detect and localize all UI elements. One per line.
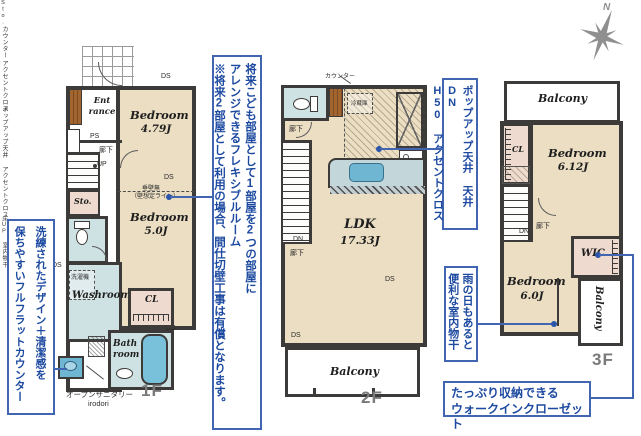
floorplan-sheet: N Ent rance Sto. PS 廊下 UP Sto. カウンター DS … <box>0 0 641 436</box>
f3-floor-label: 3F <box>592 350 614 370</box>
f2-fridge-label: 冷蔵庫 <box>351 99 368 107</box>
f3-landing <box>502 166 530 184</box>
note-flex-line3: ※将来2部屋として利用の場合、間仕切壁工事は有償となります。 <box>210 63 226 422</box>
connector-wic-h2 <box>591 397 634 399</box>
f1-washer-label: 洗濯機 <box>71 272 89 281</box>
connector-wic-v <box>632 254 634 399</box>
f1-bath-bowl <box>116 368 133 379</box>
f3-hall-label: 廊下 <box>536 221 550 231</box>
f1-shoe-cabinet <box>69 89 82 125</box>
compass-rose-icon <box>572 4 632 64</box>
f3-bedroom1-size: 6.12J <box>548 161 598 173</box>
f2-ds-left-label: DS <box>291 332 301 339</box>
connector-flex <box>170 196 212 198</box>
f1-bath-label-1: Bath <box>113 339 137 349</box>
f2-hall-btm-label: 廊下 <box>290 248 304 258</box>
f1-toilet-bowl <box>76 229 88 245</box>
f1-hall-label: 廊下 <box>99 145 113 155</box>
connector-popup <box>380 148 442 150</box>
note-popup-line1: ポップアップ天井 天井DN <box>444 85 474 223</box>
f1-mirror-fixture <box>88 336 105 357</box>
f1-counter-label: カウンター <box>0 26 9 60</box>
f1-stairs <box>66 152 100 190</box>
f1-bedroom2-label: Bedroom <box>130 210 182 224</box>
f1-up-dot <box>93 164 97 168</box>
f1-opensanitary-label-2: irodori <box>88 399 109 408</box>
f2-floor-label: 2F <box>361 388 383 408</box>
f2-popup-label: ポップアップ天井 <box>0 106 9 166</box>
f1-small-storage <box>67 129 80 153</box>
note-flexible-room: 将来こども部屋として1部屋を2つの部屋に アレンジできるフレキシブルルーム ※将… <box>212 55 262 430</box>
f1-closet <box>128 288 174 328</box>
note-drying-line1: 雨の日もあると <box>460 273 474 355</box>
note-counter-line1: 洗練されたデザイン＋清潔感を <box>29 226 50 408</box>
note-wic-line1: たっぷり収納できる <box>451 386 583 402</box>
f2-stairs <box>281 140 311 244</box>
f1-bathtub <box>141 334 168 385</box>
f1-bedroom2-size: 5.0J <box>130 225 182 237</box>
f1-ps-label: PS <box>90 133 99 140</box>
f3-bedroom2-size: 6.0J <box>507 290 557 302</box>
f1-toilet-tank <box>74 221 90 229</box>
note-popup-line2: H50 アクセントクロス <box>429 85 444 223</box>
note-flex-line1: 将来こども部屋として1部屋を2つの部屋に <box>241 63 257 422</box>
note-indoor-drying: 雨の日もあると 便利な室内物干 <box>444 266 478 362</box>
f2-balcony-tick-1 <box>313 388 316 396</box>
f3-balcony-top-label: Balcony <box>538 92 587 105</box>
f2-counter <box>329 88 343 117</box>
note-flex-line2: アレンジできるフレキシブルルーム <box>226 63 242 422</box>
f2-toilet-tank <box>310 96 318 112</box>
f1-bedroom1-label: Bedroom <box>130 108 182 122</box>
f3-bedroom1-label: Bedroom <box>548 146 598 160</box>
connector-drying-dot <box>551 321 557 327</box>
f2-stairs-wall <box>309 140 312 244</box>
f1-closet-rail <box>133 314 169 321</box>
note-drying-line2: 便利な室内物干 <box>445 273 459 355</box>
f1-bedroom1-size: 4.79J <box>130 123 182 135</box>
f1-small-storage-label: Sto. <box>0 0 6 26</box>
f1-accent-label: アクセントクロス <box>0 60 9 106</box>
f1-storage-label: Sto. <box>74 196 91 206</box>
f2-toilet-bowl <box>293 98 310 110</box>
f1-washroom-label: Washroom <box>72 290 131 301</box>
f1-bath-label-2: room <box>113 350 139 360</box>
note-wic: たっぷり収納できる ウォークインクローゼット <box>443 381 591 417</box>
compass-north-label: N <box>603 2 610 13</box>
f1-ds-mid-label: DS <box>164 174 174 181</box>
connector-drying <box>478 323 554 325</box>
f2-kitchen-sink <box>349 163 384 182</box>
f2-ds-right-label: DS <box>385 276 395 283</box>
f3-stairs-wall <box>530 124 533 242</box>
f1-ds-top-label: DS <box>161 73 171 80</box>
f1-closet-label: CL <box>145 295 159 305</box>
note-counter-line2: 保ちやすいフルフラットカウンター <box>8 226 29 408</box>
f3-dn-label: DN <box>519 228 529 235</box>
f2-cupboard <box>396 92 423 148</box>
f2-ldk-size: 17.33J <box>338 234 382 247</box>
f3-closet-label: CL <box>512 144 524 154</box>
f3-drying-pole <box>557 278 559 326</box>
f2-ldk-label: LDK <box>338 217 382 232</box>
f3-bedroom2-label: Bedroom <box>507 274 557 288</box>
f1-up-label: UP <box>97 161 107 168</box>
connector-wic-h1 <box>599 254 634 256</box>
f1-floor-label: 1F <box>141 381 163 401</box>
note-counter: 洗練されたデザイン＋清潔感を 保ちやすいフルフラットカウンター <box>7 219 55 415</box>
f2-counter-front <box>330 186 425 194</box>
f3-balcony-right-label: Balcony <box>593 286 604 331</box>
f2-dn-label: DN <box>293 236 303 243</box>
connector-counter <box>53 368 67 370</box>
note-wic-line2: ウォークインクローゼット <box>451 402 583 433</box>
f2-balcony-label: Balcony <box>330 365 379 378</box>
f1-entrance-label: Ent rance <box>86 96 118 118</box>
note-popup-ceiling: ポップアップ天井 天井DN H50 アクセントクロス <box>442 78 478 230</box>
f3-wic-rail <box>612 240 618 274</box>
f2-accent-label: アクセントクロス <box>0 166 9 216</box>
